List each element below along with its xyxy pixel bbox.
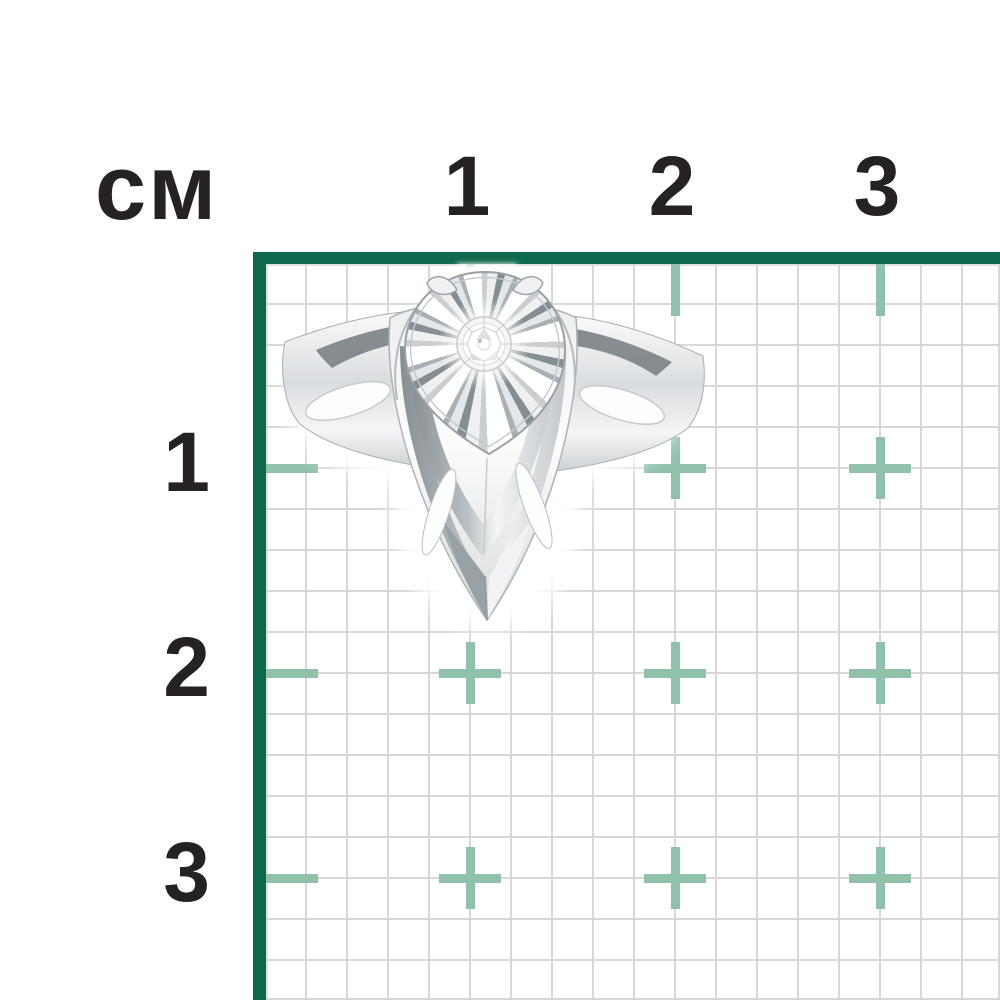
top-axis-label-1: 1 (444, 144, 491, 228)
grid-cross (671, 642, 680, 704)
top-axis-label-3: 3 (854, 144, 901, 228)
size-chart-canvas: см 1 2 3 1 2 3 (0, 0, 1000, 1000)
left-axis-label-3: 3 (60, 830, 210, 914)
ring-center-diamond (457, 317, 511, 371)
product-photo-ring (276, 254, 712, 638)
grid-cross (876, 642, 885, 704)
grid-cross (876, 437, 885, 499)
ring-prongs (427, 277, 543, 295)
left-axis-label-1: 1 (60, 420, 210, 504)
top-axis-label-2: 2 (649, 144, 696, 228)
grid-cross (466, 642, 475, 704)
grid-cross (466, 847, 475, 909)
unit-label-cm: см (95, 142, 218, 234)
grid-cross (876, 847, 885, 909)
grid-tick-left (266, 669, 318, 678)
grid-tick-top (876, 264, 885, 316)
grid-cross (671, 847, 680, 909)
ring-head-layer (276, 254, 712, 638)
left-axis-label-2: 2 (60, 625, 210, 709)
grid-tick-left (266, 874, 318, 883)
